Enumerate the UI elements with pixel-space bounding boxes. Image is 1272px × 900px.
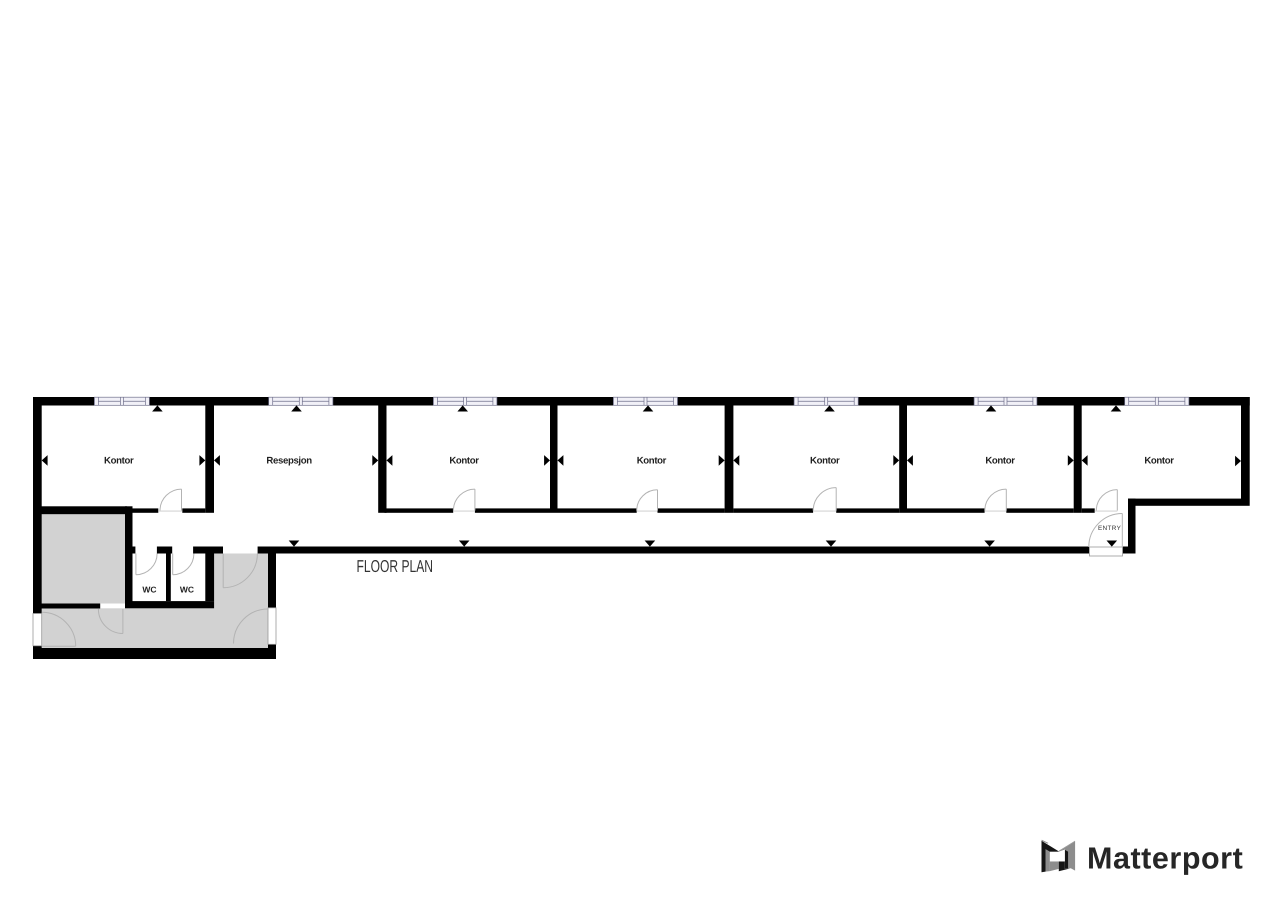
svg-text:Resepsjon: Resepsjon	[266, 456, 312, 467]
svg-text:Kontor: Kontor	[985, 456, 1015, 467]
svg-text:FLOOR PLAN: FLOOR PLAN	[357, 556, 434, 576]
svg-text:Matterport: Matterport	[1087, 842, 1243, 876]
svg-text:WC: WC	[142, 585, 156, 595]
svg-text:ENTRY: ENTRY	[1098, 525, 1122, 532]
svg-text:WC: WC	[180, 585, 194, 595]
svg-text:Kontor: Kontor	[1144, 456, 1174, 467]
svg-text:Kontor: Kontor	[104, 456, 134, 467]
svg-text:Kontor: Kontor	[449, 456, 479, 467]
svg-text:Kontor: Kontor	[810, 456, 840, 467]
svg-text:Kontor: Kontor	[637, 456, 667, 467]
